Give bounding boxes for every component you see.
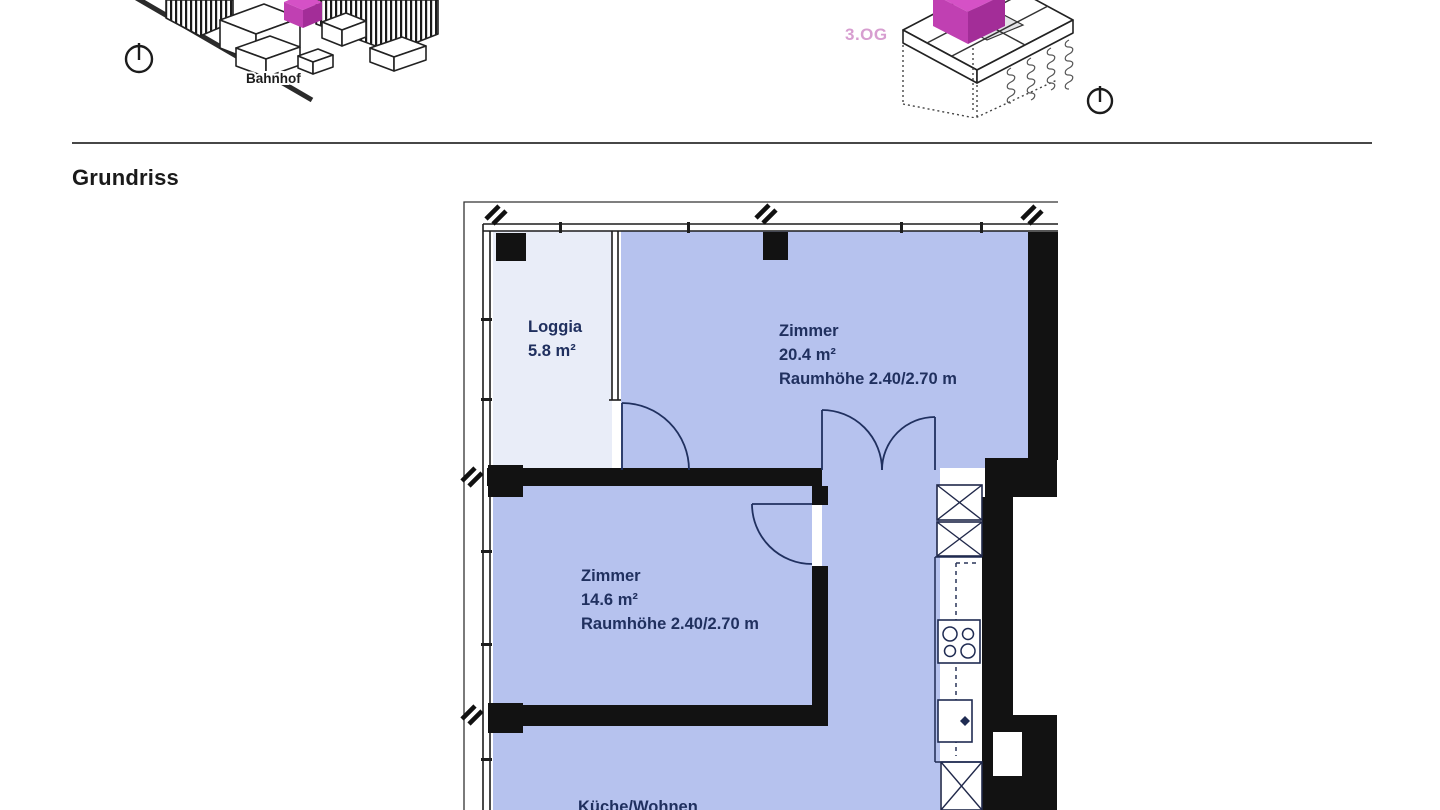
room-height-note: Raumhöhe 2.40/2.70 m (779, 370, 957, 388)
site-plan-illustration: Bahnhof (70, 0, 450, 115)
bahnhof-label: Bahnhof (246, 71, 301, 86)
page: Bahnhof (0, 0, 1440, 810)
room-label: Loggia (528, 318, 583, 336)
room-label: Zimmer (581, 567, 641, 585)
room-label: Küche/Wohnen (578, 798, 698, 810)
room-area: 5.8 m² (528, 342, 576, 360)
floor-level-label: 3.OG (845, 25, 888, 44)
kitchen-counter (935, 557, 982, 762)
hall-strip (822, 466, 940, 810)
north-arrow-icon (1088, 86, 1112, 113)
room-zimmer-2 (493, 486, 812, 705)
room-height-note: Raumhöhe 2.40/2.70 m (581, 615, 759, 633)
stove-icon (938, 620, 980, 663)
sink-icon (938, 700, 972, 742)
room-area: 14.6 m² (581, 591, 638, 609)
room-label: Zimmer (779, 322, 839, 340)
floor-locator-illustration: 3.OG (835, 0, 1125, 118)
page-title: Grundriss (72, 165, 179, 191)
floorplan-drawing: Loggia 5.8 m² Zimmer 20.4 m² Raumhöhe 2.… (460, 198, 1064, 810)
divider (72, 142, 1372, 144)
room-area: 20.4 m² (779, 346, 836, 364)
north-arrow-icon (126, 43, 152, 72)
